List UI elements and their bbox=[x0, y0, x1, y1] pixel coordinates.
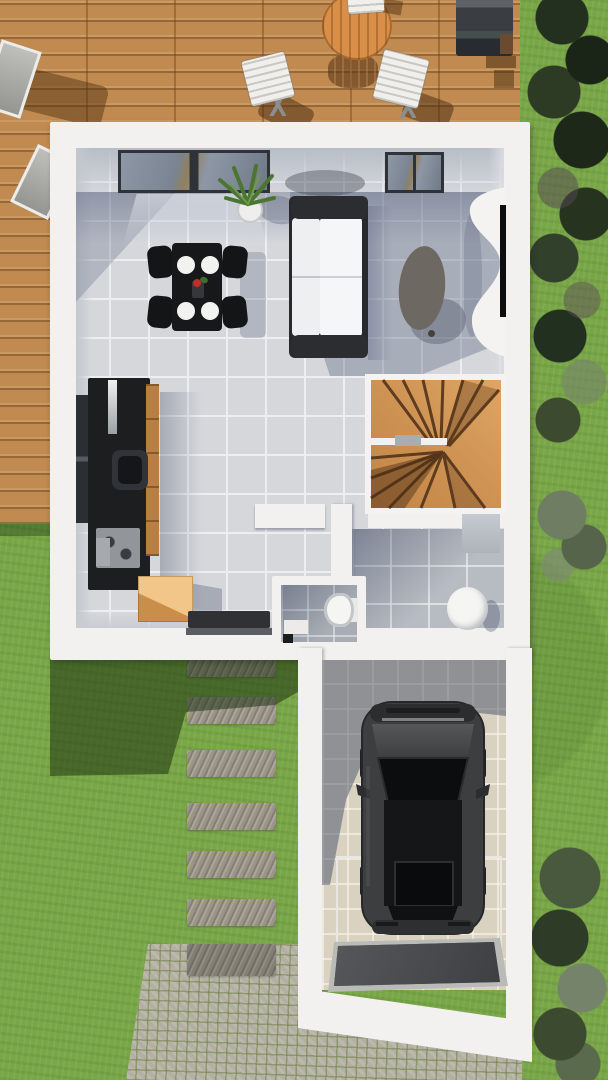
cardboard-box bbox=[138, 576, 193, 622]
stepping-stone bbox=[187, 944, 276, 976]
entry-door-mat bbox=[188, 611, 270, 628]
interior-wall bbox=[255, 504, 325, 528]
hall-cabinet bbox=[462, 513, 500, 553]
bush-middle-right bbox=[532, 485, 608, 587]
grill-shadow bbox=[494, 70, 514, 88]
entry-door-threshold bbox=[186, 628, 272, 635]
plate bbox=[177, 302, 195, 320]
stepping-stone bbox=[187, 803, 276, 830]
plate bbox=[201, 302, 219, 320]
garage-wall-left bbox=[298, 648, 322, 1008]
sofa-armrest bbox=[291, 335, 368, 358]
stepping-stone bbox=[187, 750, 276, 777]
cooktop-side bbox=[96, 538, 110, 566]
sofa-shadow bbox=[368, 206, 392, 360]
car-rear-window bbox=[388, 906, 458, 922]
interior-wall bbox=[331, 504, 352, 582]
sofa-armrest bbox=[291, 196, 368, 219]
stepping-stone bbox=[187, 899, 276, 926]
grill-shadow bbox=[486, 56, 516, 68]
tv-console bbox=[464, 185, 506, 363]
coffee-table-leg bbox=[428, 330, 435, 337]
round-basin bbox=[447, 587, 488, 630]
car-sunroof bbox=[395, 862, 453, 906]
car-hood bbox=[372, 724, 474, 756]
wall-shadow bbox=[285, 170, 365, 196]
sofa-seat bbox=[320, 218, 362, 336]
dining-chair bbox=[146, 295, 174, 329]
dining-chair bbox=[146, 245, 174, 279]
car-windshield bbox=[378, 758, 468, 802]
garage-wall-right bbox=[506, 648, 532, 1042]
terrace-chair bbox=[347, 0, 384, 14]
fridge-highlight bbox=[108, 380, 117, 434]
sofa-backrest bbox=[292, 218, 320, 336]
plant-leaves bbox=[220, 166, 274, 204]
wall-tv bbox=[500, 205, 506, 317]
toilet bbox=[324, 593, 354, 627]
grill-shelf bbox=[500, 34, 513, 54]
deck-edge-shadow bbox=[0, 522, 52, 536]
floorplan-render bbox=[0, 0, 608, 1080]
potted-plant bbox=[214, 162, 278, 230]
dining-chair bbox=[220, 245, 248, 279]
stair-newel bbox=[395, 435, 421, 446]
wc-step bbox=[284, 620, 308, 634]
dining-chair bbox=[220, 295, 248, 329]
plate bbox=[201, 256, 219, 274]
staircase bbox=[365, 374, 507, 514]
stepping-stone bbox=[187, 851, 276, 878]
tree-bottom-right bbox=[530, 838, 608, 1080]
window bbox=[385, 152, 444, 193]
car bbox=[356, 696, 490, 940]
sink-basin bbox=[118, 456, 142, 484]
hedge-right bbox=[524, 0, 608, 448]
plate bbox=[177, 256, 195, 274]
wc-mat bbox=[283, 634, 293, 643]
